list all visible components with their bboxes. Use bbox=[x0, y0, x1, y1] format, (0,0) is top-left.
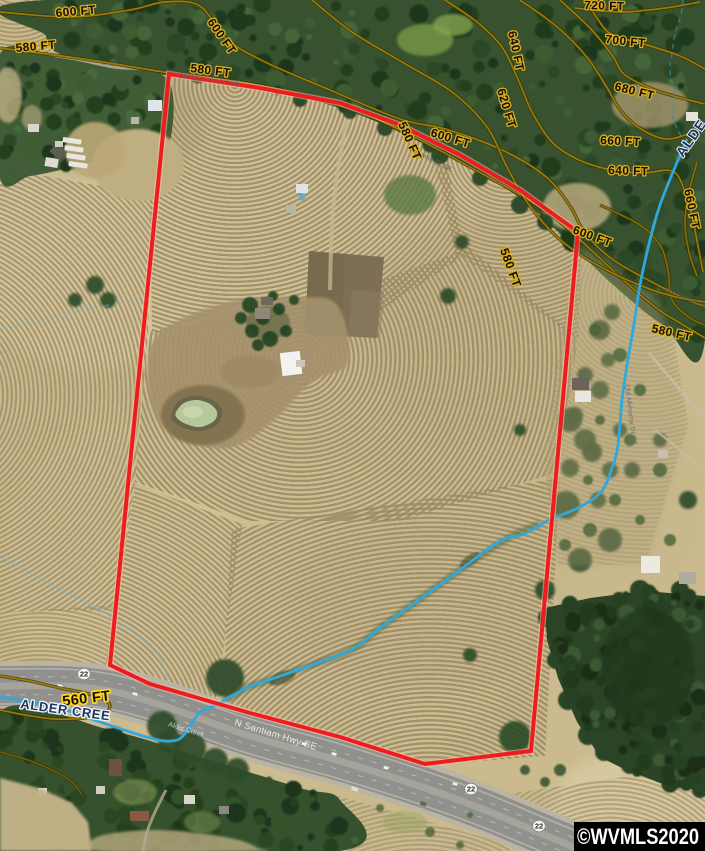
svg-text:640 FT: 640 FT bbox=[608, 163, 649, 178]
svg-text:720 FT: 720 FT bbox=[584, 0, 625, 13]
svg-text:22: 22 bbox=[467, 785, 475, 794]
svg-text:660 FT: 660 FT bbox=[600, 133, 641, 149]
svg-text:22: 22 bbox=[80, 670, 88, 679]
svg-text:22: 22 bbox=[535, 822, 543, 831]
svg-text:©WVMLS2020: ©WVMLS2020 bbox=[577, 824, 699, 849]
